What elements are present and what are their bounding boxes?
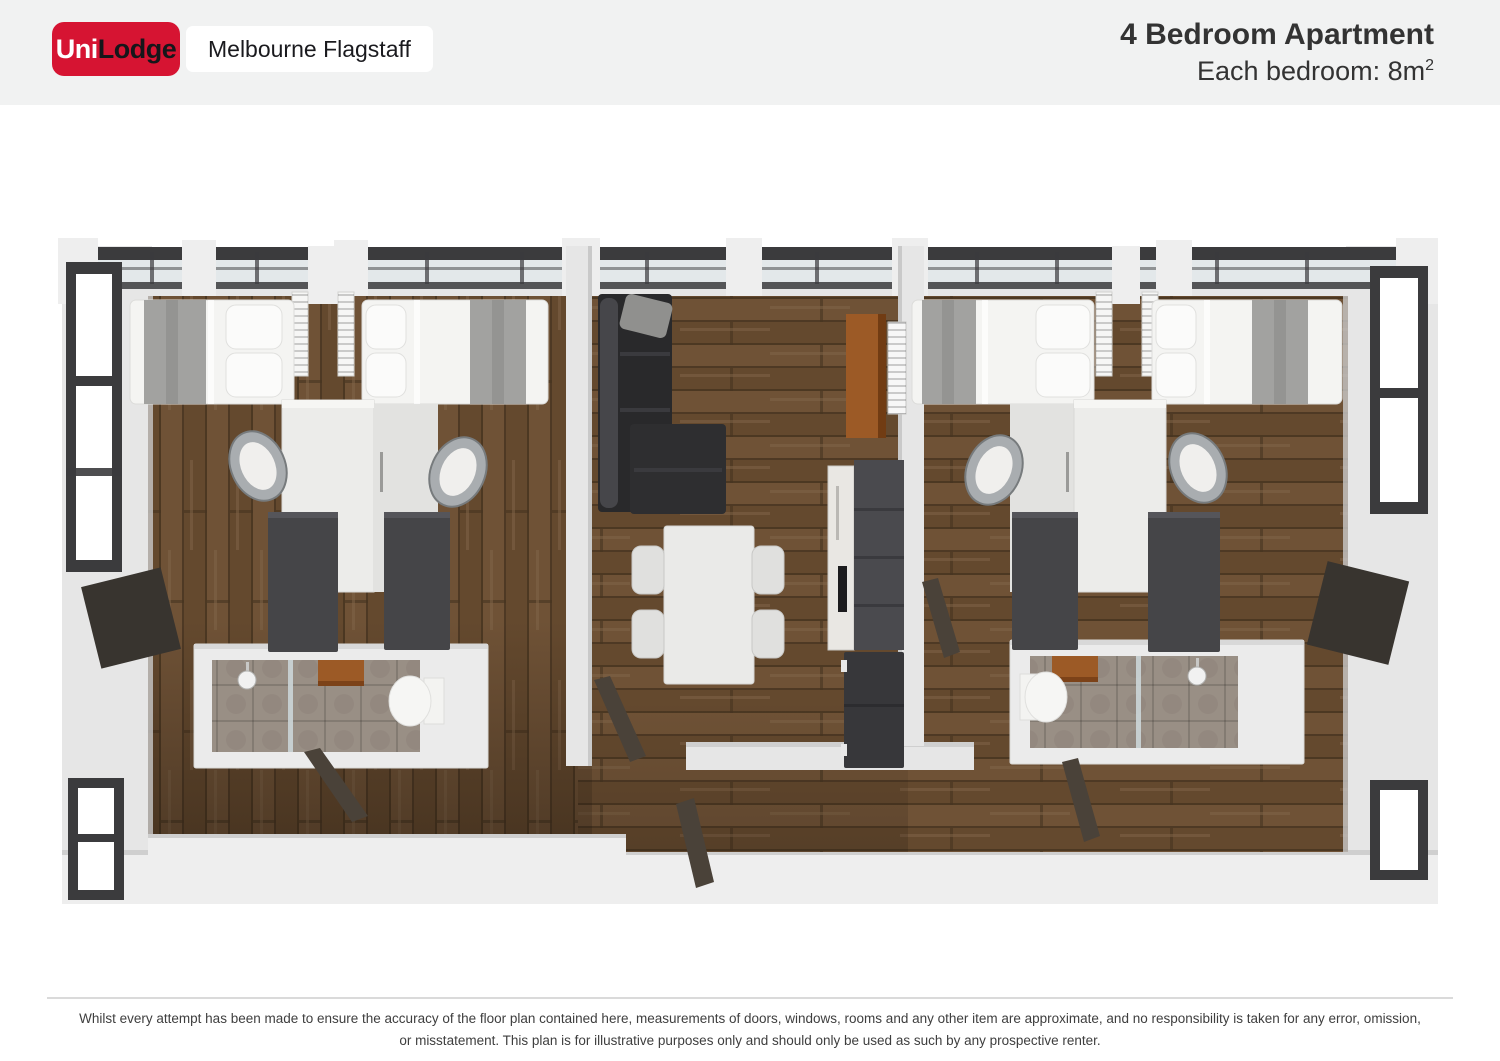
facade-pillar <box>726 238 762 302</box>
bed-1-pillow <box>226 353 282 397</box>
wall-bottom-kitchen-edge <box>686 742 974 747</box>
disclaimer-section: Whilst every attempt has been made to en… <box>0 997 1500 1051</box>
property-name-chip: Melbourne Flagstaff <box>186 26 433 72</box>
header-bar: UniLodge Melbourne Flagstaff 4 Bedroom A… <box>0 0 1500 105</box>
ledge-bottom-left-edge <box>148 834 626 838</box>
bed-3-fold <box>982 300 988 404</box>
dining-chair <box>632 546 664 594</box>
window-left-upper-mullion <box>66 376 122 386</box>
facade-pillar <box>1156 240 1192 302</box>
desk-unit-left-handle <box>380 452 383 492</box>
wall-left-unit-living-shade <box>588 246 592 766</box>
kitchen-counter-vein <box>836 486 839 540</box>
dining-chair <box>752 610 784 658</box>
bed-2-blanket-stripe <box>492 300 504 404</box>
window-left-lower-mullion <box>68 834 124 842</box>
wardrobe-top <box>1012 512 1078 518</box>
window-left-upper-glass <box>76 274 112 560</box>
plan-title: 4 Bedroom Apartment <box>1120 16 1434 54</box>
page: UniLodge Melbourne Flagstaff 4 Bedroom A… <box>0 0 1500 1061</box>
superscript-2: 2 <box>1425 57 1434 74</box>
divider-line <box>47 997 1453 999</box>
plan-subtitle: Each bedroom: 8m2 <box>1120 54 1434 89</box>
fridge-hinge <box>841 744 847 756</box>
dining-table <box>664 526 754 684</box>
shower-screen-right <box>1136 656 1141 748</box>
bed-4-blanket-stripe <box>1274 300 1286 404</box>
unilodge-logo: UniLodge <box>52 22 180 76</box>
dining-chair <box>752 546 784 594</box>
bath-bench-left-edge <box>318 681 364 686</box>
window-mullion <box>150 252 154 284</box>
window-mullion <box>1055 252 1059 284</box>
window-right-upper-mullion <box>1370 388 1428 398</box>
facade-pillar <box>182 240 216 302</box>
plan-title-block: 4 Bedroom Apartment Each bedroom: 8m2 <box>1120 16 1434 89</box>
bed-3-pillow <box>1036 305 1090 349</box>
sofa-seam <box>620 408 670 412</box>
wardrobe <box>384 512 450 650</box>
bedroom-partition-stub-right <box>1112 246 1140 304</box>
bed-2-pillow <box>366 305 406 349</box>
dining-chair <box>632 610 664 658</box>
floorplan-shapes <box>58 238 1438 904</box>
window-mullion <box>815 252 819 284</box>
shower-head-left <box>238 671 256 689</box>
bed-1-blanket-stripe <box>166 300 178 404</box>
fridge-seam <box>844 704 904 707</box>
window-mullion <box>520 252 524 284</box>
window-left-upper-mullion <box>66 468 122 476</box>
toilet-bowl-left <box>389 676 431 726</box>
disclaimer-line-1: Whilst every attempt has been made to en… <box>79 1011 1421 1026</box>
kitchen-cabinet-seam <box>854 508 904 511</box>
window-mullion <box>425 252 429 284</box>
bedroom-partition-stub-left <box>308 246 338 304</box>
wardrobe-top <box>268 512 338 518</box>
wall-heater-slats <box>1096 292 1112 376</box>
sofa-seam <box>620 352 670 356</box>
floorplan-svg <box>0 0 1500 1061</box>
wardrobe <box>1012 512 1078 650</box>
bed-2-pillow <box>366 353 406 397</box>
window-mullion <box>1215 252 1219 284</box>
toilet-bowl-right <box>1025 672 1067 722</box>
balcony-band <box>62 850 1438 904</box>
fridge <box>844 652 904 768</box>
bed-1-pillow <box>226 305 282 349</box>
bed-3-blanket-stripe <box>942 300 954 404</box>
fridge-hinge <box>841 660 847 672</box>
desk-unit-right-handle <box>1066 452 1069 492</box>
wardrobe <box>1148 512 1220 652</box>
sofa-chaise-seam <box>634 468 722 472</box>
wardrobe-top <box>1148 512 1220 518</box>
window-mullion <box>1305 252 1309 284</box>
wardrobe-top <box>384 512 450 518</box>
kitchen-cabinets <box>854 460 904 650</box>
property-name: Melbourne Flagstaff <box>208 36 411 63</box>
kitchen-counter <box>828 466 854 650</box>
logo-text-uni: Uni <box>56 34 98 65</box>
window-right-lower-glass <box>1380 790 1418 870</box>
kitchen-sink <box>838 566 847 612</box>
wall-heater-slats <box>338 292 354 376</box>
bed-4-pillow <box>1156 353 1196 397</box>
shower-screen-left <box>288 660 293 752</box>
disclaimer-text: Whilst every attempt has been made to en… <box>0 1008 1500 1051</box>
logo-text-lodge: Lodge <box>98 34 177 65</box>
window-mullion <box>975 252 979 284</box>
shower-head-right <box>1188 667 1206 685</box>
wardrobe <box>268 512 338 652</box>
bed-1-fold <box>208 300 214 404</box>
window-mullion <box>645 252 649 284</box>
window-mullion <box>255 252 259 284</box>
bed-2-fold <box>414 300 420 404</box>
plan-subtitle-text: Each bedroom: 8m <box>1197 56 1425 86</box>
radiator-slats <box>888 322 906 414</box>
kitchen-cabinet-seam <box>854 556 904 559</box>
desk-unit-left-top <box>282 400 374 408</box>
sofa-back-cushions <box>600 298 618 508</box>
disclaimer-line-2: or misstatement. This plan is for illust… <box>399 1033 1100 1048</box>
timber-console-edge <box>878 314 886 438</box>
kitchen-cabinet-seam <box>854 604 904 607</box>
bed-4-pillow <box>1156 305 1196 349</box>
bed-3-pillow <box>1036 353 1090 397</box>
desk-unit-right-top <box>1074 400 1166 408</box>
bed-4-fold <box>1204 300 1210 404</box>
